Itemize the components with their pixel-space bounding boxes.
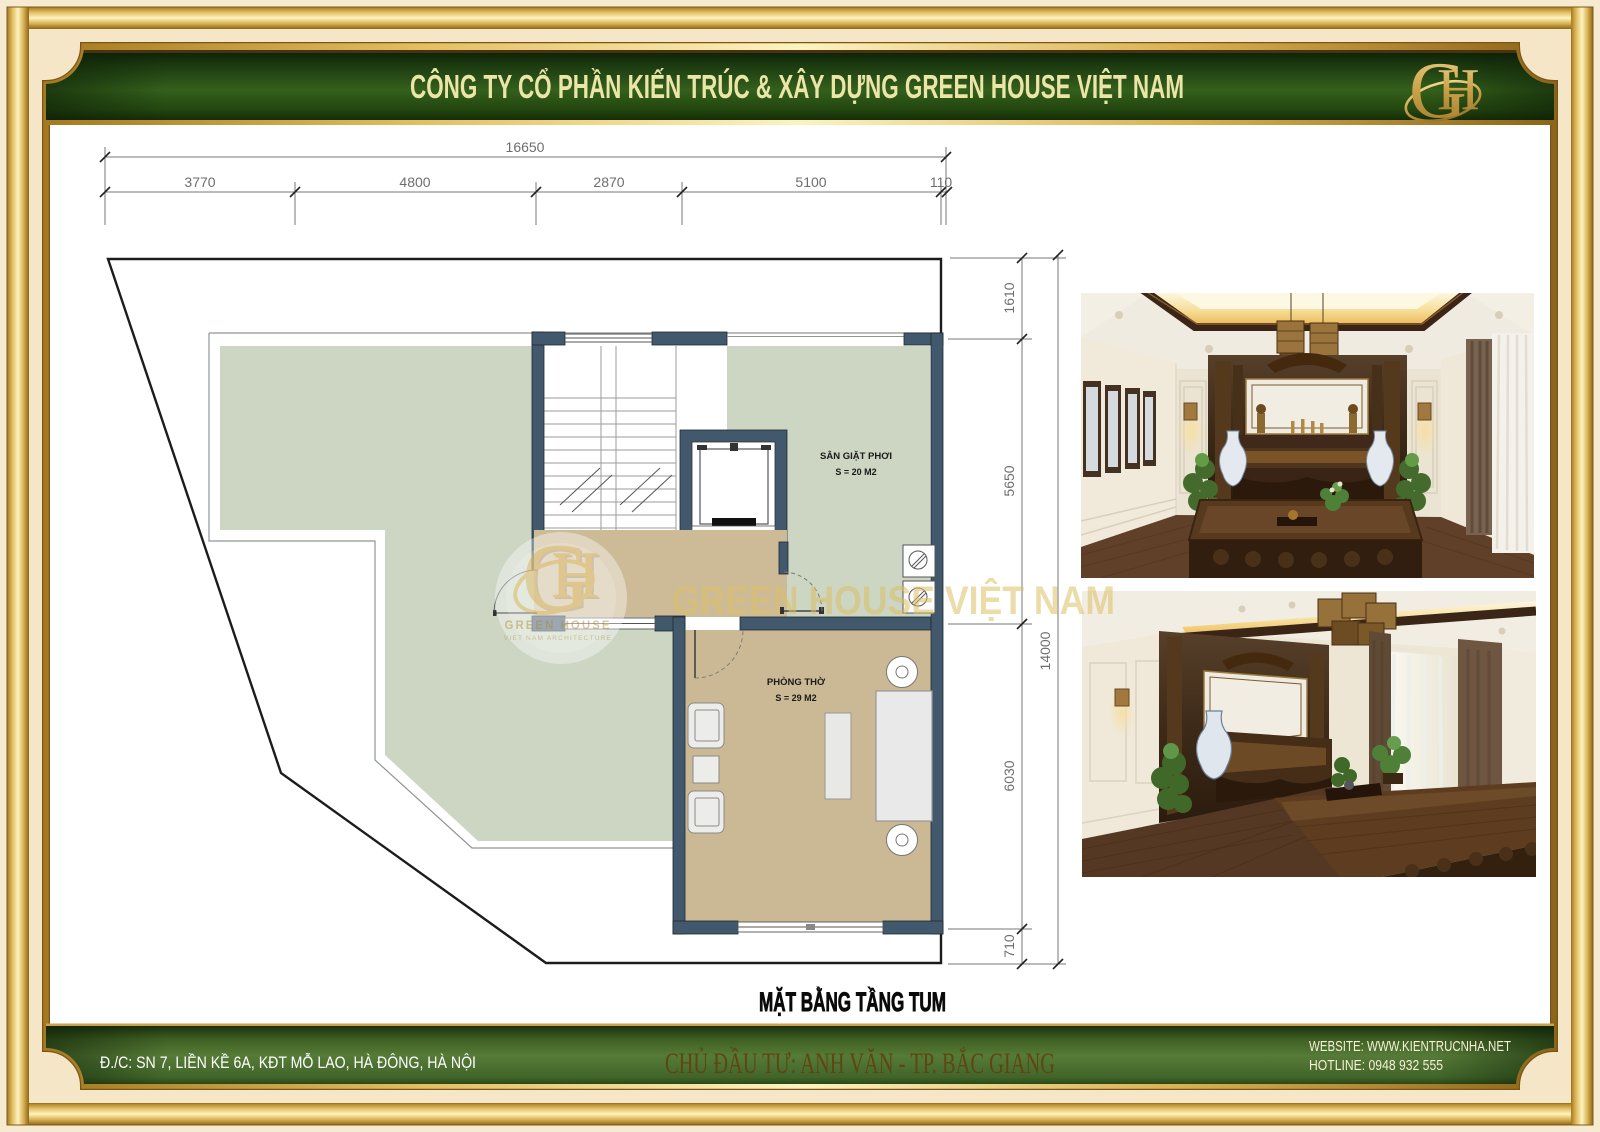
svg-text:110: 110 — [930, 174, 953, 190]
svg-text:2870: 2870 — [593, 174, 624, 190]
svg-text:SÂN GIẶT PHƠI: SÂN GIẶT PHƠI — [820, 450, 892, 462]
svg-text:HOTLINE: 0948 932 555: HOTLINE: 0948 932 555 — [1309, 1058, 1443, 1074]
svg-text:4800: 4800 — [399, 174, 430, 190]
svg-text:GREEN HOUSE: GREEN HOUSE — [505, 620, 612, 632]
svg-text:VIET NAM ARCHITECTURE: VIET NAM ARCHITECTURE — [504, 635, 612, 642]
svg-text:GREEN HOUSE VIỆT NAM: GREEN HOUSE VIỆT NAM — [672, 577, 1115, 623]
svg-text:16650: 16650 — [506, 139, 545, 155]
svg-text:H: H — [551, 538, 599, 612]
svg-text:CHỦ ĐẦU TƯ: ANH VĂN - TP. BẮC: CHỦ ĐẦU TƯ: ANH VĂN - TP. BẮC GIANG — [665, 1046, 1055, 1080]
svg-text:H: H — [1437, 56, 1480, 122]
svg-text:1610: 1610 — [1001, 282, 1017, 313]
svg-text:PHÒNG THỜ: PHÒNG THỜ — [767, 676, 826, 688]
svg-text:6030: 6030 — [1001, 760, 1017, 791]
svg-text:710: 710 — [1001, 934, 1017, 958]
svg-text:5650: 5650 — [1001, 465, 1017, 496]
svg-text:Đ./C: SN 7, LIỀN KỀ 6A, KĐT MỖ: Đ./C: SN 7, LIỀN KỀ 6A, KĐT MỖ LAO, HÀ Đ… — [100, 1053, 476, 1072]
svg-text:WEBSITE: WWW.KIENTRUCNHA.NET: WEBSITE: WWW.KIENTRUCNHA.NET — [1309, 1039, 1511, 1055]
svg-text:S = 20 M2: S = 20 M2 — [835, 467, 876, 477]
svg-text:14000: 14000 — [1037, 631, 1053, 670]
svg-text:5100: 5100 — [795, 174, 826, 190]
svg-text:3770: 3770 — [184, 174, 215, 190]
svg-text:CÔNG TY CỔ PHẦN KIẾN TRÚC & XÂ: CÔNG TY CỔ PHẦN KIẾN TRÚC & XÂY DỰNG GRE… — [410, 67, 1184, 105]
svg-text:MẶT BẰNG TẦNG TUM: MẶT BẰNG TẦNG TUM — [759, 986, 946, 1017]
svg-text:S = 29 M2: S = 29 M2 — [775, 693, 816, 703]
